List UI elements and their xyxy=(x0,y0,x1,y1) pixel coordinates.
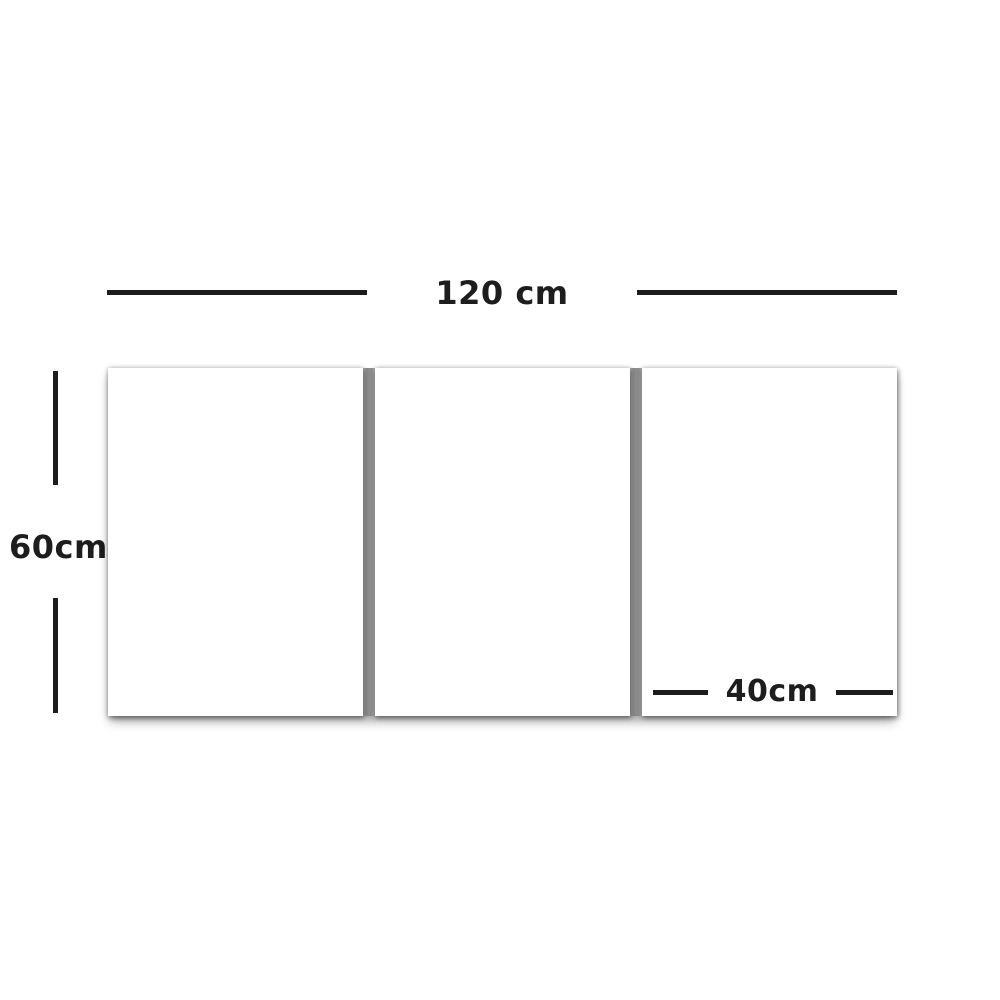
width-dimension-line-right xyxy=(637,290,897,295)
panel-divider-1 xyxy=(363,368,375,716)
panel-width-dimension-line-right xyxy=(836,690,893,695)
width-dimension-line-left xyxy=(107,290,367,295)
panel-width-dimension-line-left xyxy=(653,690,708,695)
height-dimension-label: 60cm xyxy=(9,528,105,566)
panel-width-dimension-label: 40cm xyxy=(712,673,832,711)
canvas-dimension-diagram: 120 cm 60cm 40cm xyxy=(0,0,1000,1000)
canvas-panel-2 xyxy=(375,368,630,716)
height-dimension-line-top xyxy=(53,371,58,485)
canvas-panel-1 xyxy=(108,368,363,716)
width-dimension-label: 120 cm xyxy=(367,274,637,312)
height-dimension-line-bottom xyxy=(53,598,58,713)
canvas-panel-3: 40cm xyxy=(642,368,897,716)
panel-row: 40cm xyxy=(108,368,897,716)
panel-divider-2 xyxy=(630,368,642,716)
